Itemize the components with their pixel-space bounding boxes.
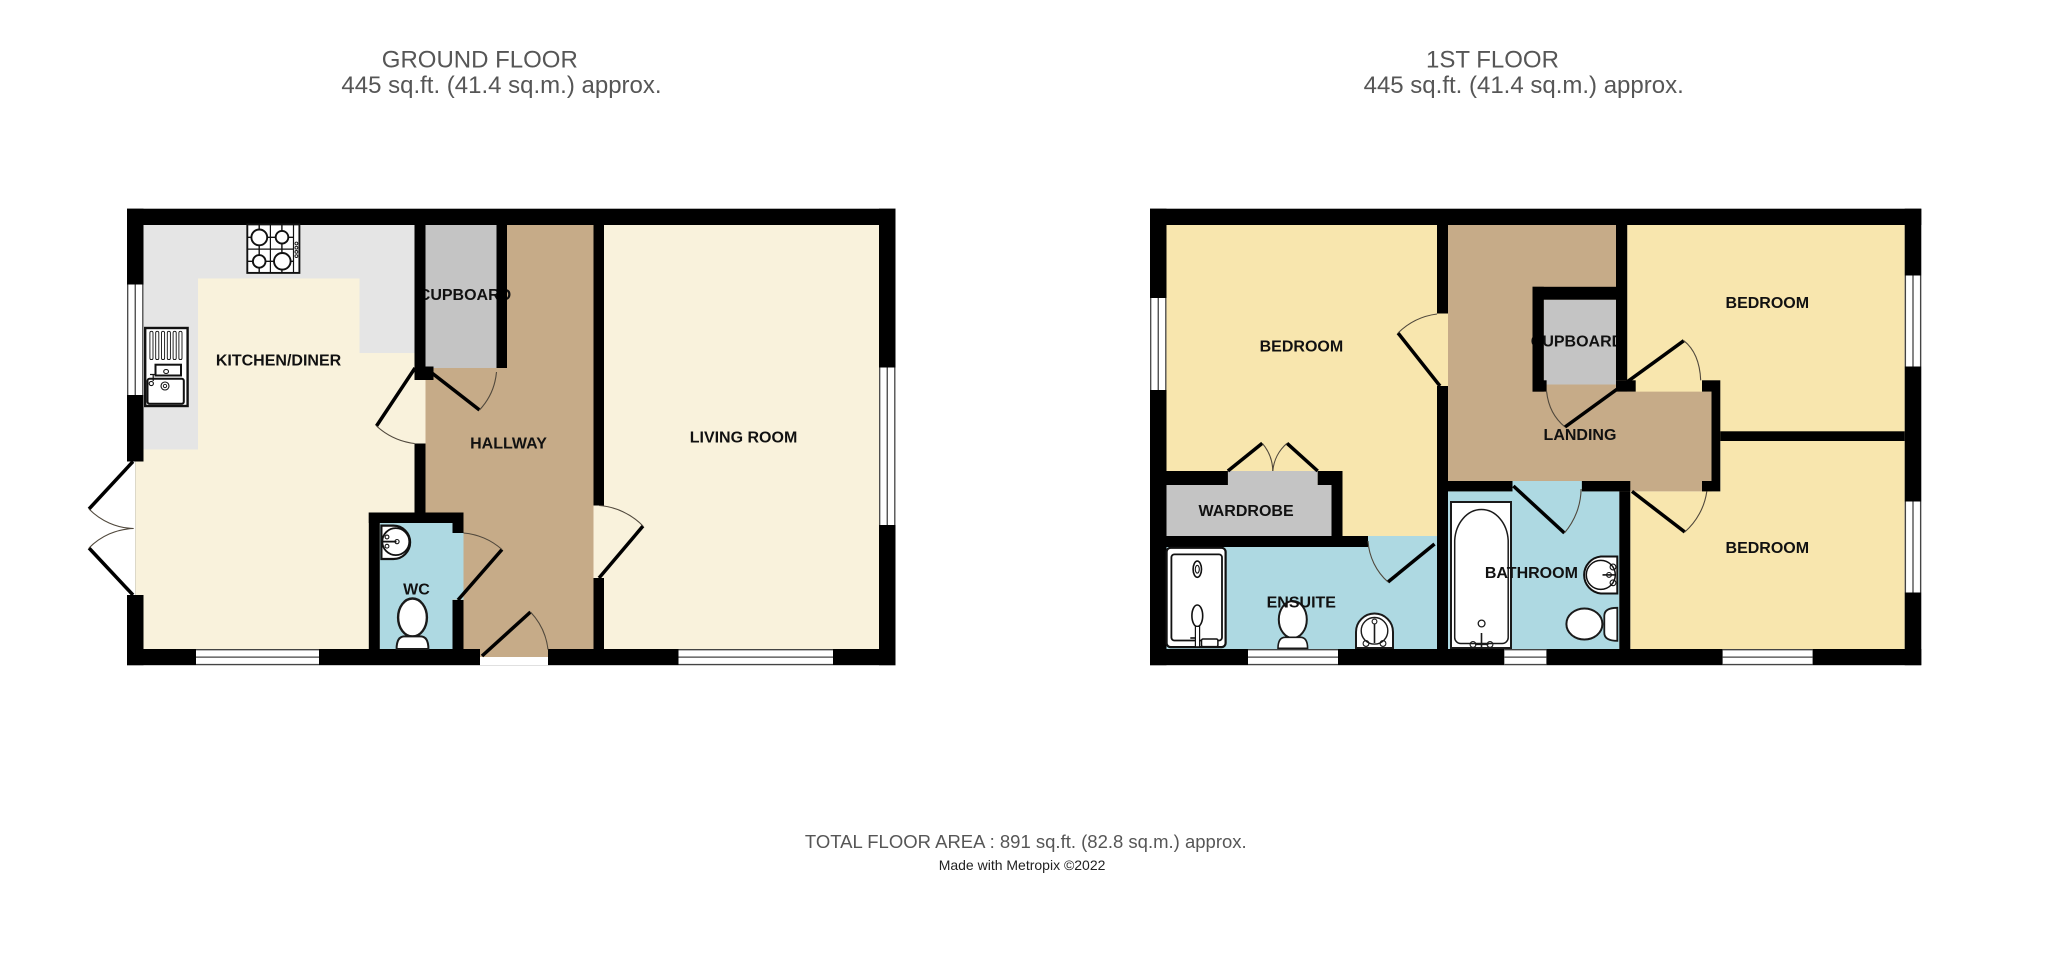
svg-text:445 sq.ft. (41.4 sq.m.) approx: 445 sq.ft. (41.4 sq.m.) approx. (341, 72, 661, 99)
svg-text:BEDROOM: BEDROOM (1260, 339, 1344, 356)
svg-text:ENSUITE: ENSUITE (1267, 595, 1337, 612)
svg-text:KITCHEN/DINER: KITCHEN/DINER (216, 353, 342, 370)
svg-text:BEDROOM: BEDROOM (1726, 295, 1810, 312)
svg-text:BEDROOM: BEDROOM (1726, 540, 1810, 557)
svg-text:HALLWAY: HALLWAY (470, 436, 547, 453)
svg-text:WARDROBE: WARDROBE (1199, 503, 1294, 520)
svg-text:WC: WC (403, 582, 430, 599)
svg-text:CUPBOARD: CUPBOARD (1531, 333, 1623, 350)
svg-text:1ST FLOOR: 1ST FLOOR (1426, 47, 1559, 74)
svg-text:445 sq.ft. (41.4 sq.m.) approx: 445 sq.ft. (41.4 sq.m.) approx. (1364, 72, 1684, 99)
svg-text:GROUND FLOOR: GROUND FLOOR (382, 47, 578, 74)
svg-text:BATHROOM: BATHROOM (1485, 565, 1578, 582)
svg-text:Made with Metropix ©2022: Made with Metropix ©2022 (939, 857, 1106, 873)
svg-text:TOTAL FLOOR AREA : 891 sq.ft.: TOTAL FLOOR AREA : 891 sq.ft. (82.8 sq.m… (805, 831, 1247, 852)
svg-text:LIVING ROOM: LIVING ROOM (690, 430, 798, 447)
svg-text:LANDING: LANDING (1544, 427, 1617, 444)
